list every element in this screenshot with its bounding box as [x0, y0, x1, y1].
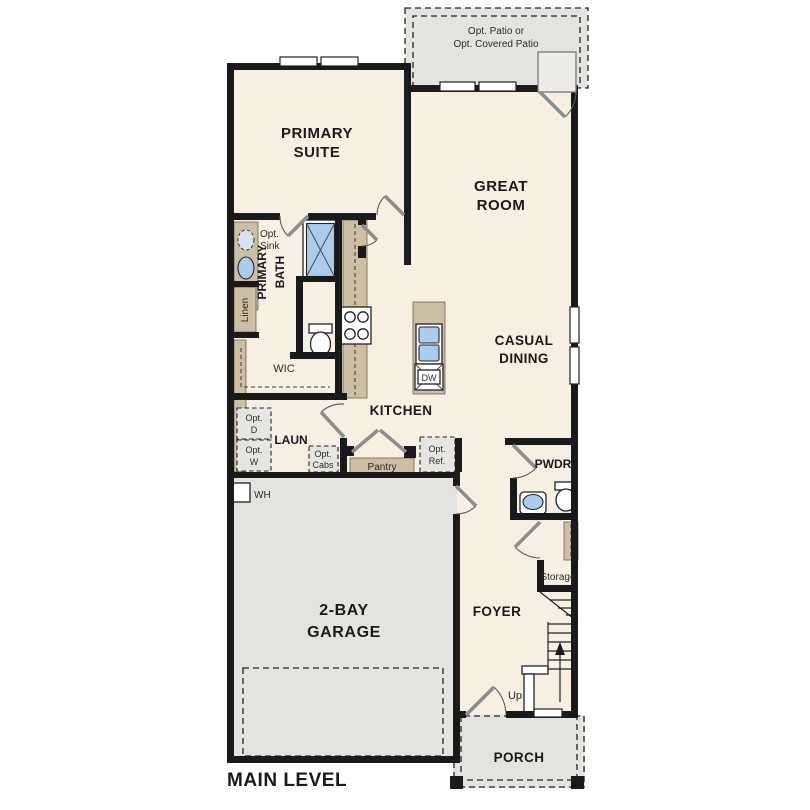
porch-post	[571, 776, 584, 789]
svg-text:Opt.: Opt.	[428, 444, 445, 454]
label-dishwasher: DW	[422, 373, 437, 383]
porch-post	[450, 776, 463, 789]
vanity-sink-icon	[238, 257, 254, 279]
svg-text:DINING: DINING	[499, 351, 549, 366]
label-pantry: Pantry	[368, 462, 397, 473]
cooktop-icon	[341, 307, 371, 344]
window	[321, 57, 358, 66]
plan-title: MAIN LEVEL	[227, 770, 347, 791]
room-label-porch: PORCH	[494, 750, 545, 765]
label-water-heater: WH	[254, 490, 271, 501]
window	[440, 82, 475, 91]
svg-text:2-BAY: 2-BAY	[319, 602, 369, 619]
label-storage: Storage	[540, 572, 575, 583]
svg-text:GARAGE: GARAGE	[307, 624, 381, 641]
room-label-wic: WIC	[273, 363, 294, 375]
svg-text:Cabs: Cabs	[312, 460, 334, 470]
room-label-foyer: FOYER	[473, 604, 522, 619]
svg-text:Sink: Sink	[260, 241, 280, 252]
svg-text:ROOM: ROOM	[477, 197, 526, 214]
svg-text:GREAT: GREAT	[474, 178, 528, 195]
patio-landing	[538, 52, 576, 92]
window	[280, 57, 317, 66]
bath-toilet-icon	[309, 324, 332, 356]
window	[570, 307, 579, 343]
svg-text:BATH: BATH	[273, 256, 287, 288]
svg-text:Opt.: Opt.	[314, 449, 331, 459]
floor-plan: PRIMARY SUITE GREAT ROOM CASUAL DINING K…	[0, 0, 810, 810]
floor-plan-page: PRIMARY SUITE GREAT ROOM CASUAL DINING K…	[0, 0, 810, 810]
powder-sink-icon	[520, 492, 546, 514]
svg-text:Opt. Covered Patio: Opt. Covered Patio	[453, 39, 538, 50]
stair-rail	[524, 674, 534, 712]
svg-text:CASUAL: CASUAL	[495, 333, 554, 348]
label-linen: Linen	[240, 298, 251, 322]
svg-text:SUITE: SUITE	[294, 144, 341, 161]
room-label-laundry: LAUN	[274, 433, 307, 447]
svg-text:Opt.: Opt.	[245, 413, 262, 423]
svg-text:Ref.: Ref.	[429, 456, 446, 466]
room-label-powder: PWDR	[535, 457, 572, 471]
opt-sink-icon	[238, 230, 254, 250]
svg-text:PRIMARY: PRIMARY	[255, 245, 269, 300]
label-opt-cabs: Opt. Cabs	[312, 449, 334, 470]
stair-rail	[522, 666, 548, 674]
svg-text:D: D	[251, 425, 258, 435]
window	[534, 709, 562, 717]
island-sink-icon	[416, 324, 442, 364]
room-label-kitchen: KITCHEN	[370, 403, 433, 418]
window	[479, 82, 516, 91]
shower	[303, 220, 338, 280]
svg-text:PRIMARY: PRIMARY	[281, 125, 353, 142]
window	[570, 347, 579, 384]
svg-text:Opt.: Opt.	[245, 445, 262, 455]
opt-ref	[420, 437, 455, 472]
label-up: Up	[508, 690, 522, 702]
svg-text:W: W	[250, 457, 259, 467]
svg-text:Opt. Patio or: Opt. Patio or	[468, 26, 525, 37]
svg-text:Opt.: Opt.	[260, 229, 279, 240]
label-opt-sink: Opt. Sink	[260, 229, 280, 252]
